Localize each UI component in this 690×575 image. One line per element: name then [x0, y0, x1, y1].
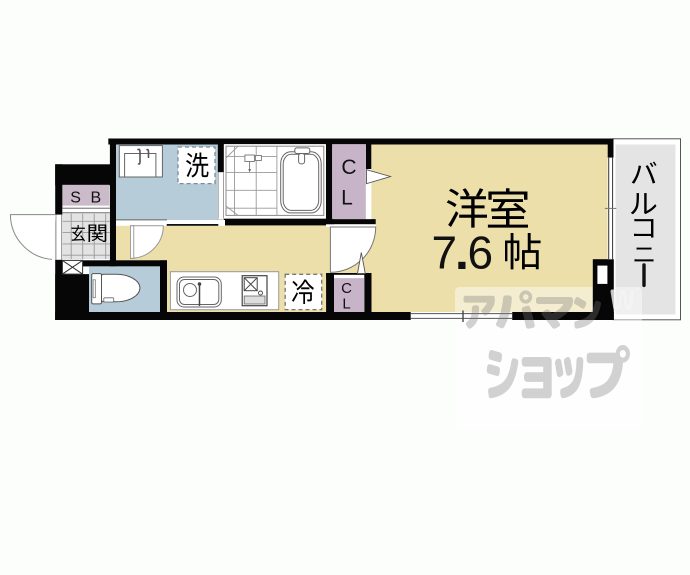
- svg-text:C: C: [341, 280, 352, 297]
- svg-text:7: 7: [432, 227, 458, 279]
- svg-text:SB: SB: [70, 189, 110, 206]
- svg-text:L: L: [342, 296, 350, 313]
- svg-text:L: L: [341, 187, 353, 210]
- svg-text:6: 6: [468, 227, 494, 279]
- svg-text:C: C: [341, 156, 356, 179]
